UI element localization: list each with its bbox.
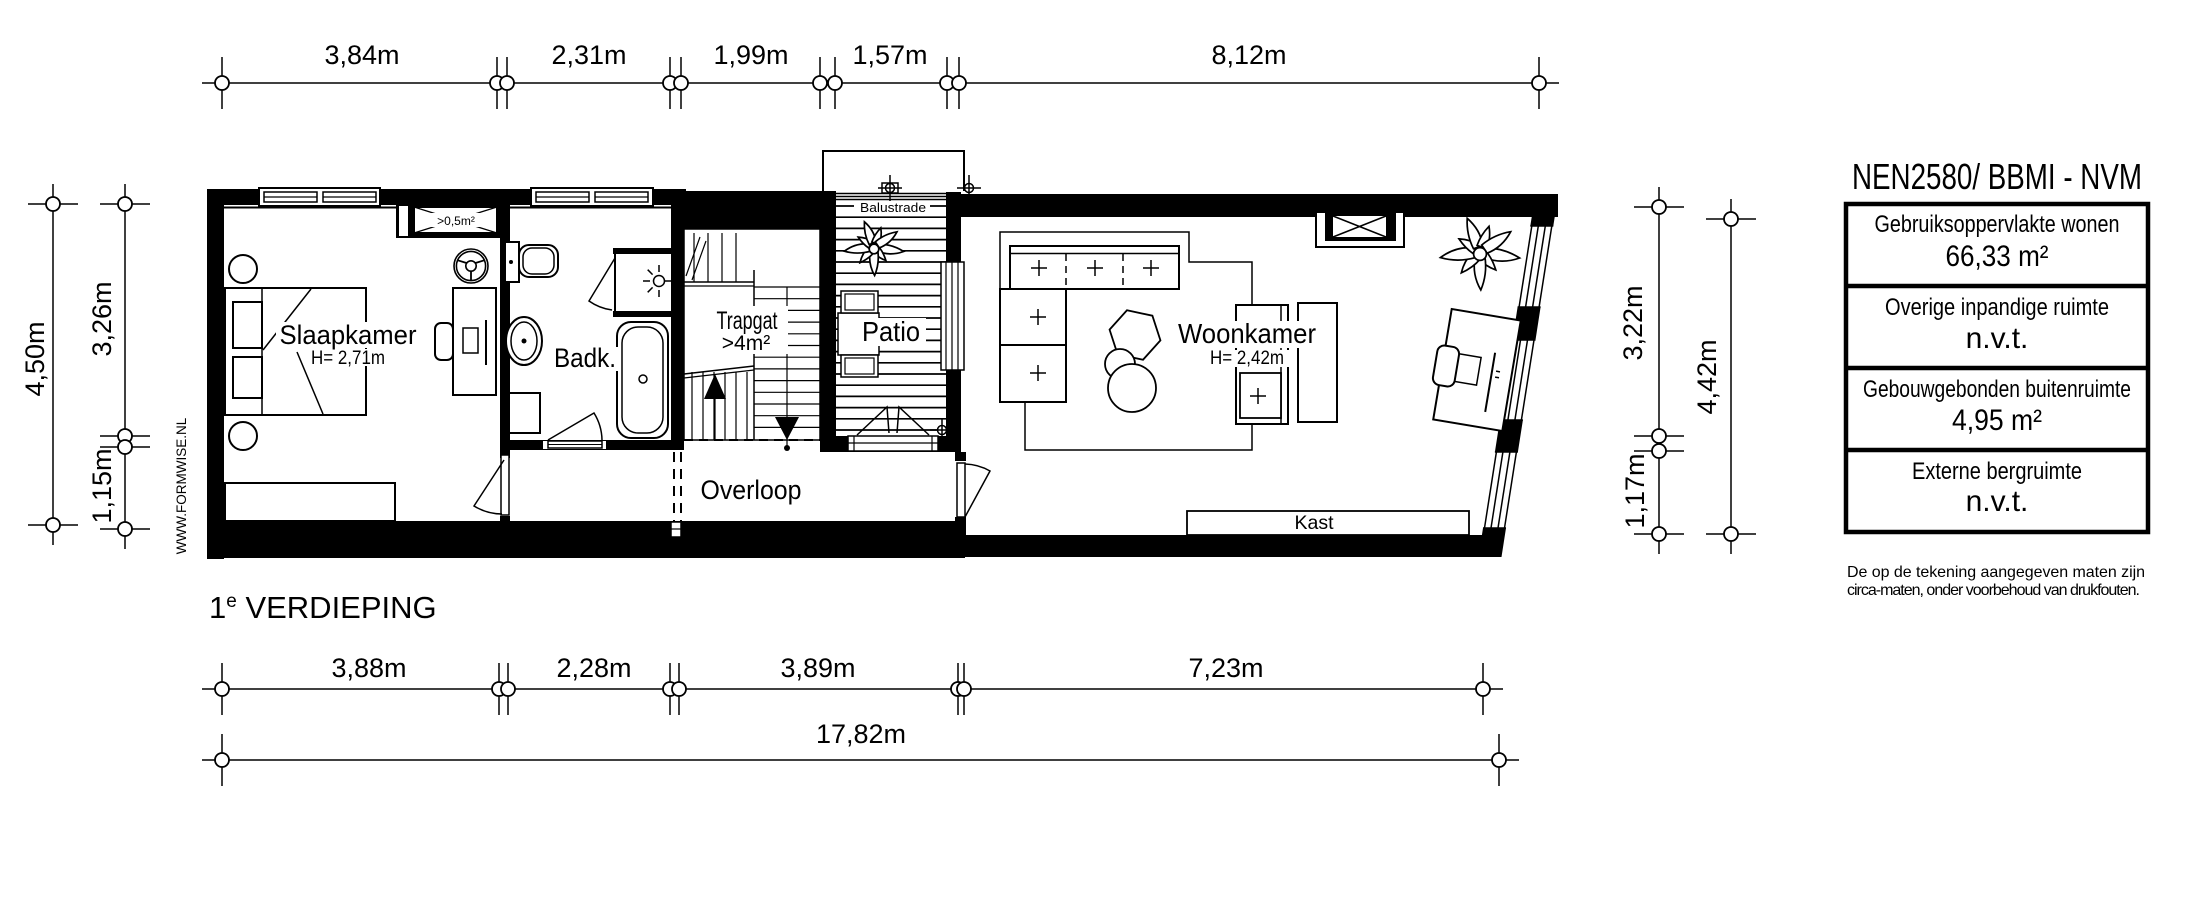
svg-text:Gebouwgebonden buitenruimte: Gebouwgebonden buitenruimte [1863,376,2131,403]
svg-text:>0,5m²: >0,5m² [437,214,475,228]
svg-text:Kast: Kast [1294,512,1334,534]
svg-text:4,50m: 4,50m [20,321,50,396]
svg-text:Woonkamer: Woonkamer [1178,318,1316,349]
svg-text:1,15m: 1,15m [87,448,117,523]
svg-text:8,12m: 8,12m [1211,40,1286,70]
svg-text:NEN2580/ BBMI - NVM: NEN2580/ BBMI - NVM [1852,156,2142,197]
svg-text:Trapgat: Trapgat [717,307,778,335]
svg-text:2,31m: 2,31m [551,40,626,70]
svg-text:Badk.: Badk. [554,343,616,373]
svg-text:3,26m: 3,26m [87,281,117,356]
svg-text:Overloop: Overloop [701,475,802,505]
svg-text:66,33 m²: 66,33 m² [1946,240,2049,273]
svg-text:Slaapkamer: Slaapkamer [280,320,417,350]
svg-text:3,88m: 3,88m [331,653,406,683]
svg-text:H= 2,42m: H= 2,42m [1210,348,1284,369]
svg-text:Gebruiksoppervlakte wonen: Gebruiksoppervlakte wonen [1875,211,2120,238]
svg-text:1,99m: 1,99m [713,40,788,70]
svg-text:3,84m: 3,84m [324,40,399,70]
svg-text:Overige inpandige ruimte: Overige inpandige ruimte [1885,294,2109,321]
svg-text:7,23m: 7,23m [1188,653,1263,683]
svg-text:4,95 m²: 4,95 m² [1952,404,2042,437]
svg-text:2,28m: 2,28m [556,653,631,683]
svg-text:1,17m: 1,17m [1620,453,1650,528]
svg-text:1,57m: 1,57m [852,40,927,70]
svg-text:circa-maten, onder voorbehoud: circa-maten, onder voorbehoud van drukfo… [1847,582,2140,599]
svg-text:3,22m: 3,22m [1618,285,1648,360]
svg-text:WWW.FORMWISE.NL: WWW.FORMWISE.NL [174,417,189,554]
svg-text:n.v.t.: n.v.t. [1966,485,2029,518]
svg-text:3,89m: 3,89m [780,653,855,683]
svg-text:Patio: Patio [862,316,920,347]
svg-text:17,82m: 17,82m [816,719,906,749]
svg-text:H= 2,71m: H= 2,71m [311,348,385,369]
svg-text:n.v.t.: n.v.t. [1966,322,2029,355]
svg-text:De op de tekening aangegeven m: De op de tekening aangegeven maten zijn [1847,564,2145,581]
svg-text:Balustrade: Balustrade [860,200,926,215]
svg-text:Externe bergruimte: Externe bergruimte [1912,458,2082,485]
svg-text:1e VERDIEPING: 1e VERDIEPING [209,590,437,625]
svg-text:>4m²: >4m² [722,332,770,355]
svg-text:4,42m: 4,42m [1692,339,1722,414]
